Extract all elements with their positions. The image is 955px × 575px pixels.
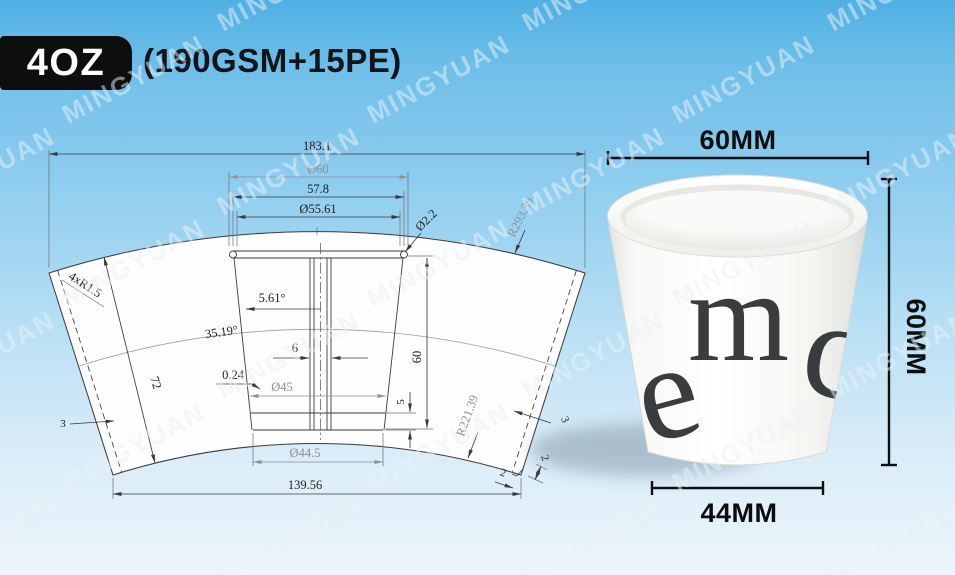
dim-bottom-dia: Ø44.5 [290,446,321,460]
dim-cup-height: 60 [410,351,424,364]
print-letter-m: m [688,245,789,389]
dim-thickness: 0.24 [222,368,245,382]
dim-top-inner-dia: Ø55.61 [299,202,336,216]
dim-seam-left: 3 [60,418,66,430]
dim-bottom-width: 139.56 [288,478,322,492]
material-spec-label: (190GSM+15PE) [143,42,402,80]
dim-bottom-band: 5 [395,399,407,405]
technical-drawing: 183.1 Ø60 57.8 Ø55.61 Ø2.2 R293.39 4xR1.… [49,139,585,499]
dim-seam-right: 3 [558,415,571,426]
dim-photo-height: 60MM [901,298,931,375]
size-badge: 4OZ [0,36,132,90]
dim-total-width: 183.1 [303,139,331,153]
size-badge-label: 4OZ [27,42,105,85]
dim-top-arc-radius: R293.39 [505,195,537,239]
cup-inner-wall [626,191,850,249]
dim-wall-angle: 5.61° [259,291,286,305]
dim-top-outer-dia: Ø60 [307,162,329,176]
dim-photo-top-width: 60MM [699,125,776,155]
fan-blank-outline [49,232,585,476]
dim-photo-bottom-width: 44MM [700,498,777,528]
product-spec-image: 183.1 Ø60 57.8 Ø55.61 Ø2.2 R293.39 4xR1.… [0,0,955,575]
dim-mid-dia: Ø45 [271,380,293,394]
main-scene: 183.1 Ø60 57.8 Ø55.61 Ø2.2 R293.39 4xR1.… [0,0,955,575]
dim-rim-outer-width: 57.8 [307,182,329,196]
cup-photo: m c e [530,175,877,476]
dim-rim-roll-dia: Ø2.2 [413,207,440,234]
dim-seam-width: 6 [292,341,298,355]
